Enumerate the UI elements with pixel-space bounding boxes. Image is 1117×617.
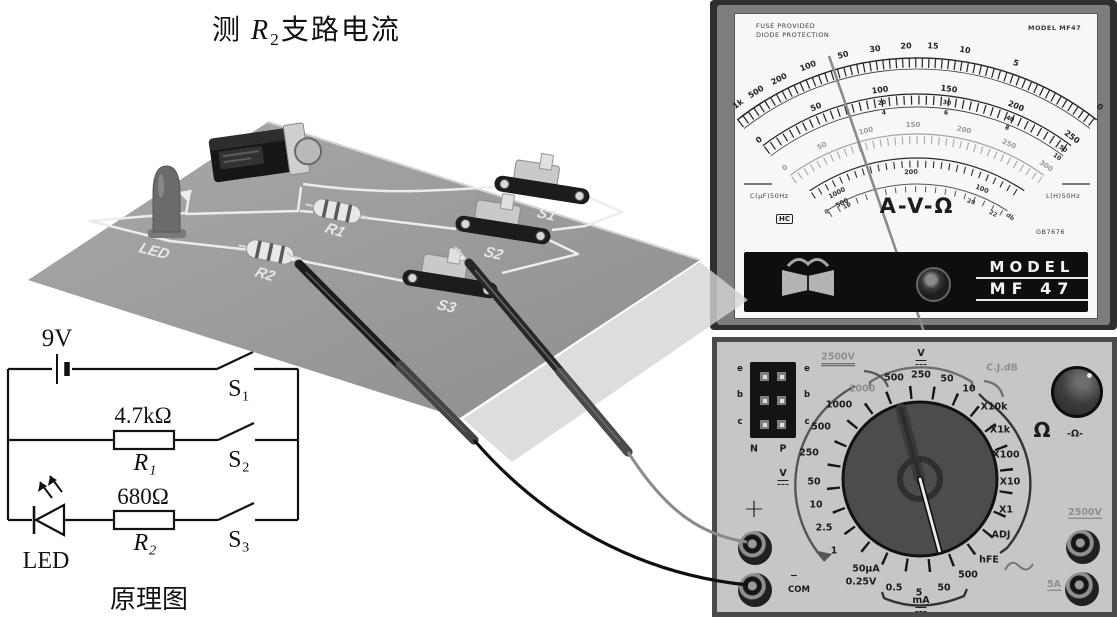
ohm-section-symbol: Ω xyxy=(1033,420,1050,440)
range-ma-500: 500 xyxy=(958,570,978,580)
switch-s3-label: S₃ xyxy=(228,527,250,553)
switch-s2-label: S₂ xyxy=(228,447,250,473)
brand-emblem-icon xyxy=(762,252,872,312)
range-dcv-500: 500 xyxy=(811,422,831,432)
band-adjust-knob[interactable] xyxy=(916,267,951,302)
r2-name-label: R₂ xyxy=(132,530,156,556)
inductance-scale-label: L(H)50Hz xyxy=(1046,192,1080,200)
led-label: LED xyxy=(23,548,70,574)
switch-s2[interactable] xyxy=(454,187,556,245)
v-scale-top-label: V xyxy=(916,349,927,365)
range-dial[interactable] xyxy=(843,402,997,556)
circuit-schematic: 9V S₁ 4.7kΩ R₁ S₂ 680Ω R₂ S₃ LED 原理图 xyxy=(2,318,312,617)
range-dcv-1: 1 xyxy=(831,546,838,556)
led-component xyxy=(148,166,186,238)
socket-label-b-right: b xyxy=(804,391,810,400)
ohm-adjust-label: -Ω- xyxy=(1067,429,1083,439)
battery-9v xyxy=(208,121,324,186)
transistor-socket[interactable] xyxy=(750,362,796,438)
jack-2500v[interactable] xyxy=(1066,530,1100,564)
plus-terminal-label: + xyxy=(743,496,765,522)
range-acv-50: 50 xyxy=(940,374,953,384)
range-x100: X100 xyxy=(992,450,1019,460)
range-dcv-1000: 1000 xyxy=(826,400,852,410)
jack-5a-label: 5A xyxy=(1047,580,1061,591)
jack-plus[interactable] xyxy=(738,531,772,565)
jack-2500v-label: 2500V xyxy=(1068,508,1102,519)
test-probe-black[interactable] xyxy=(287,252,748,585)
schematic-caption: 原理图 xyxy=(110,585,188,614)
com-label: COM xyxy=(788,586,810,595)
page-title: 测 R2支路电流 xyxy=(212,8,401,50)
ma-section-label: mA xyxy=(912,596,929,612)
battery-voltage-label: 9V xyxy=(42,325,73,352)
resistor-r1 xyxy=(304,196,370,227)
r1-name-label: R₁ xyxy=(132,450,156,476)
range-50ua: 50μA xyxy=(852,564,880,574)
multimeter-panel: e b c e b c N P 2500V V C.J.dB 1000 500 … xyxy=(712,337,1117,617)
board-label-led: LED xyxy=(136,240,172,263)
standard-label: GB7676 xyxy=(1036,228,1065,236)
range-2500v: 2500V xyxy=(821,352,855,366)
fuse-note-line2: DIODE PROTECTION xyxy=(756,31,829,39)
socket-label-c-left: c xyxy=(737,418,742,427)
range-x1: X1 xyxy=(999,505,1013,515)
range-acv-10: 10 xyxy=(962,384,975,394)
range-x10k: X10k xyxy=(981,402,1008,412)
socket-label-b-left: b xyxy=(737,391,743,400)
jack-5a[interactable] xyxy=(1065,572,1099,606)
switch-s3[interactable] xyxy=(401,241,503,299)
range-acv-1000: 1000 xyxy=(849,384,875,394)
range-ma-50: 50 xyxy=(937,583,950,593)
range-dcv-50: 50 xyxy=(807,477,820,487)
board-label-r2: R2 xyxy=(252,264,278,285)
range-x1k: X1k xyxy=(990,425,1010,435)
circuit-traces xyxy=(90,184,622,281)
cj-db-label: C.J.dB xyxy=(986,363,1018,373)
dcv-section-label: V xyxy=(778,469,789,485)
range-hfe: hFE xyxy=(979,555,999,565)
board-label-s2: S2 xyxy=(482,244,506,264)
board-label-s3: S3 xyxy=(435,297,459,317)
range-acv-250: 250 xyxy=(911,370,931,380)
r2-value-label: 680Ω xyxy=(117,484,169,509)
range-dcv-2.5: 2.5 xyxy=(816,523,833,533)
test-probe-red[interactable] xyxy=(455,247,747,542)
switch-s1-label: S₁ xyxy=(228,376,250,402)
board-shadow xyxy=(463,262,748,462)
capacitance-scale-label: C(μF)50Hz xyxy=(750,192,789,200)
socket-label-n: N xyxy=(750,444,758,454)
socket-label-e-left: e xyxy=(737,365,743,374)
model-label: MODEL MF47 xyxy=(1028,24,1081,32)
socket-label-e-right: e xyxy=(804,365,810,374)
jack-com[interactable] xyxy=(738,573,772,607)
board-label-s1: S1 xyxy=(535,205,559,225)
certification-mark: HC xyxy=(776,214,793,224)
socket-label-p: P xyxy=(780,444,787,454)
board-label-r1: R1 xyxy=(322,220,347,241)
minus-label: − xyxy=(790,571,798,581)
range-ma-0.5: 0.5 xyxy=(886,583,903,593)
zero-ohm-adjust-knob[interactable] xyxy=(1051,366,1103,418)
meter-function-label: A-V-Ω xyxy=(880,194,955,218)
range-dcv-10: 10 xyxy=(809,500,822,510)
range-adj: ADJ xyxy=(992,530,1011,540)
range-0.25v: 0.25V xyxy=(846,577,877,587)
meter-brand-band: MODEL MF 47 xyxy=(744,252,1088,312)
range-x10: X10 xyxy=(1000,477,1021,487)
r1-value-label: 4.7kΩ xyxy=(114,403,171,428)
range-dcv-250: 250 xyxy=(799,448,819,458)
switch-s1[interactable] xyxy=(493,147,595,205)
range-acv-500: 500 xyxy=(884,373,904,383)
brand-model-text: MODEL MF 47 xyxy=(976,258,1088,301)
screenshot: 测 R2支路电流 1k xyxy=(0,0,1117,617)
socket-label-c-right: c xyxy=(804,418,809,427)
resistor-r2 xyxy=(237,237,303,268)
multimeter-display: 1k 500 200 100 50 30 20 15 10 5 0 0 50 1… xyxy=(710,0,1117,330)
fuse-note-line1: FUSE PROVIDED xyxy=(756,22,815,30)
